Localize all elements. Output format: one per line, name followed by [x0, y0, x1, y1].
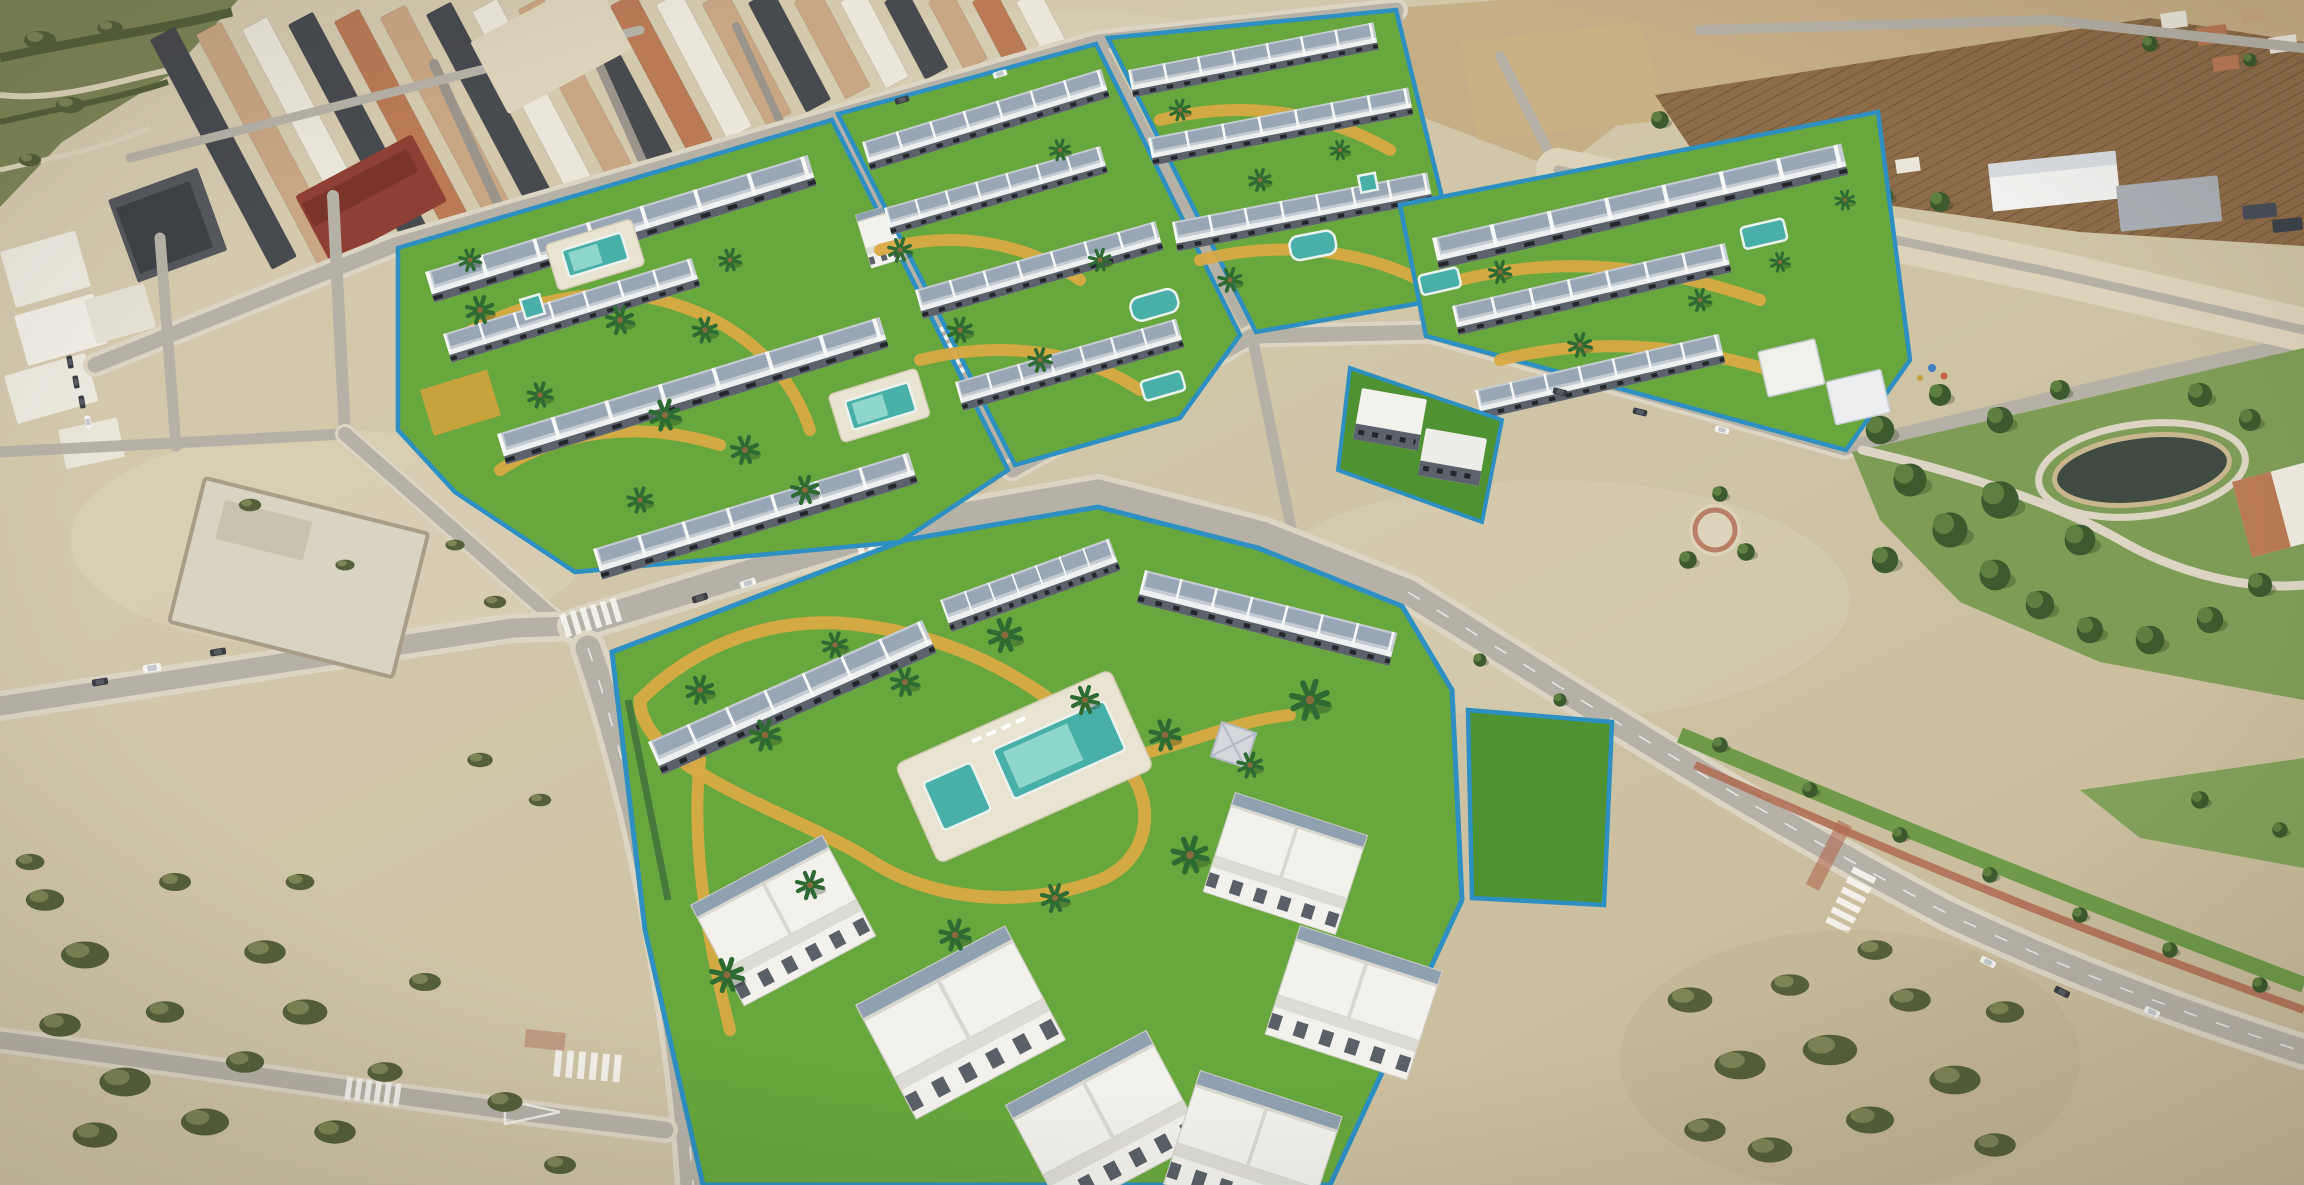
- aerial-photo-canvas: [0, 0, 2304, 1185]
- photo-vignette: [0, 0, 2304, 1185]
- aerial-photo: [0, 0, 2304, 1185]
